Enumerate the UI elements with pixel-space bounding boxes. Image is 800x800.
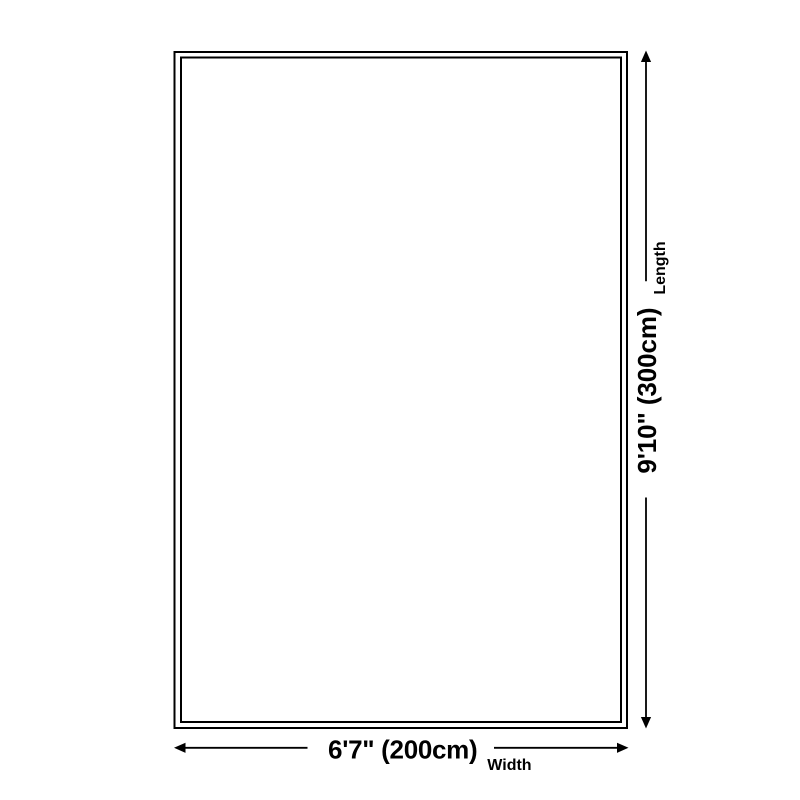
svg-text:6'7" (200cm): 6'7" (200cm) (328, 735, 477, 765)
svg-text:9'10" (300cm): 9'10" (300cm) (632, 308, 662, 474)
svg-text:Width: Width (487, 757, 531, 774)
svg-text:Length: Length (652, 241, 669, 294)
